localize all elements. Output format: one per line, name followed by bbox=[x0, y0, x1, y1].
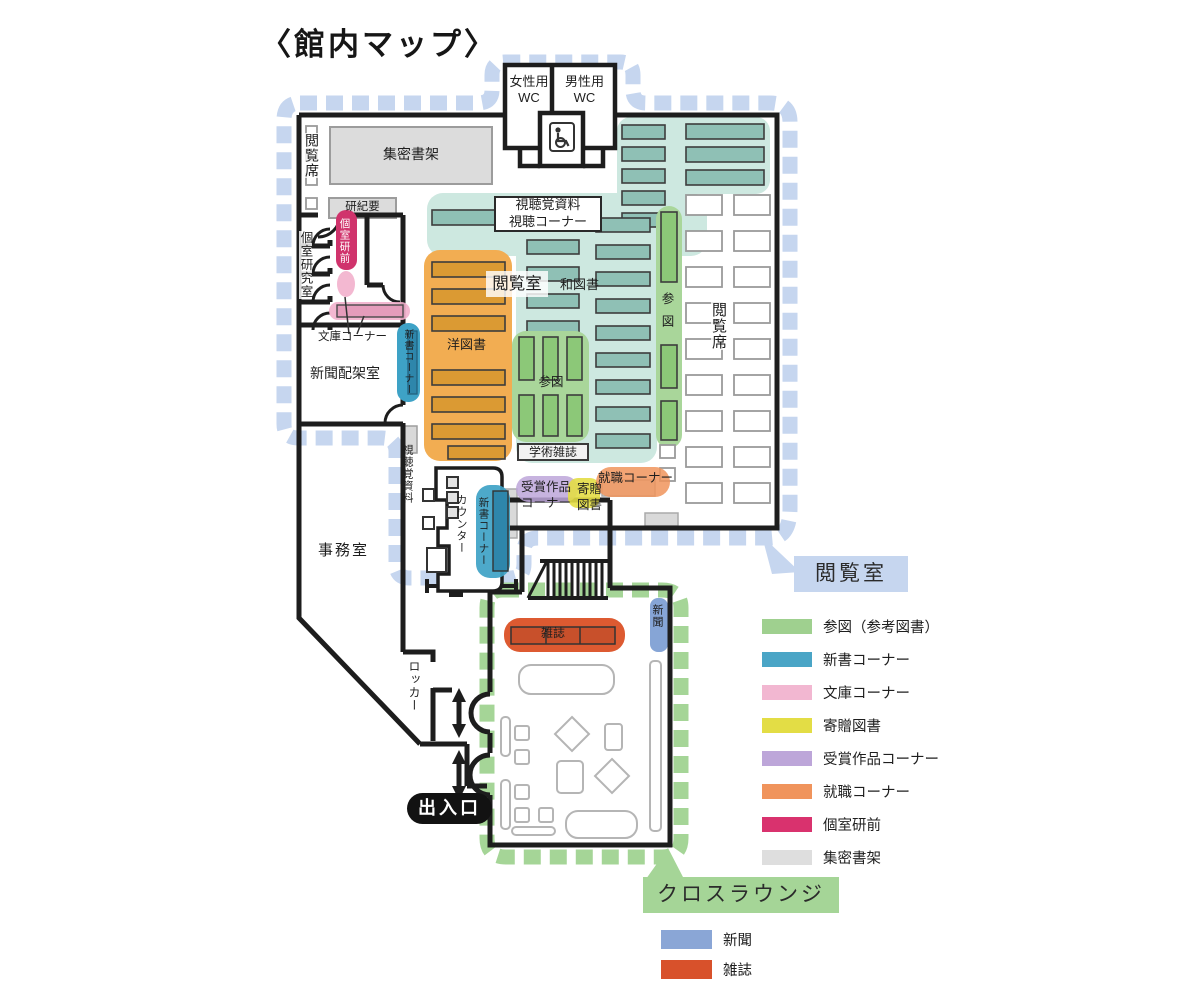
label-reading-room-inline: 閲覧室 bbox=[486, 271, 548, 297]
legend-item: 参図（参考図書） bbox=[762, 616, 939, 637]
label-donated-books: 寄贈 図書 bbox=[577, 481, 602, 514]
label-private-study-rooms: 個室研究室 bbox=[299, 231, 312, 299]
legend-item: 受賞作品コーナー bbox=[762, 748, 939, 769]
page-title: 〈館内マップ〉 bbox=[260, 26, 498, 65]
label-reference-strip: 参図 bbox=[660, 292, 673, 337]
label-locker: ロッカー bbox=[408, 660, 420, 712]
reading-room-legend: 参図（参考図書） 新書コーナー 文庫コーナー 寄贈図書 受賞作品コーナー 就職コ… bbox=[762, 616, 939, 880]
label-kenkiyo: 研紀要 bbox=[329, 200, 396, 214]
legend-item: 就職コーナー bbox=[762, 781, 939, 802]
legend-item: 文庫コーナー bbox=[762, 682, 939, 703]
legend-label: 新書コーナー bbox=[823, 649, 910, 670]
legend-swatch bbox=[762, 751, 812, 766]
legend-swatch bbox=[762, 817, 812, 832]
legend-swatch bbox=[762, 784, 812, 799]
label-bunko-corner: 文庫コーナー bbox=[318, 330, 387, 344]
legend-label: 寄贈図書 bbox=[823, 715, 881, 736]
legend-swatch bbox=[762, 718, 812, 733]
legend-item: 寄贈図書 bbox=[762, 715, 939, 736]
legend-item: 集密書架 bbox=[762, 847, 939, 868]
legend-swatch bbox=[762, 685, 812, 700]
label-newspaper-rack-room: 新聞配架室 bbox=[310, 365, 380, 383]
label-av-corner: 視聴覚資料 視聴コーナー bbox=[494, 196, 602, 232]
legend-item: 新書コーナー bbox=[762, 649, 939, 670]
label-career-corner: 就職コーナー bbox=[598, 471, 673, 487]
label-reference-center: 参図 bbox=[531, 375, 571, 391]
lounge-legend: 新聞 雑誌 bbox=[661, 929, 752, 989]
label-compact-stacks: 集密書架 bbox=[330, 146, 492, 164]
legend-label: 就職コーナー bbox=[823, 781, 910, 802]
label-entrance: 出入口 bbox=[407, 793, 492, 824]
label-reading-seats-left: 閲覧席 bbox=[305, 133, 319, 178]
label-counter: カウンター bbox=[455, 494, 466, 554]
lounge-callout-pointer bbox=[646, 848, 684, 879]
legend-swatch bbox=[762, 652, 812, 667]
legend-item: 雑誌 bbox=[661, 959, 752, 980]
label-newspaper-shelf: 新聞 bbox=[651, 604, 662, 628]
label-shinsho-corner-lower: 新書コーナー bbox=[478, 497, 489, 566]
legend-swatch bbox=[762, 619, 812, 634]
bunko-blob-small bbox=[337, 271, 355, 297]
legend-label: 集密書架 bbox=[823, 847, 881, 868]
label-reading-seats-right: 閲覧席 bbox=[711, 302, 726, 350]
label-japanese-books: 和図書 bbox=[560, 277, 599, 293]
label-private-study-front: 個室研前 bbox=[339, 218, 350, 264]
label-shinsho-corner-upper: 新書コーナー bbox=[402, 329, 412, 395]
label-wc-male: 男性用 WC bbox=[561, 74, 608, 107]
legend-swatch bbox=[661, 960, 712, 979]
legend-swatch bbox=[661, 930, 712, 949]
legend-label: 受賞作品コーナー bbox=[823, 748, 939, 769]
label-award-works-corner: 受賞作品 コーナー bbox=[521, 479, 571, 512]
legend-label: 参図（参考図書） bbox=[823, 616, 939, 637]
label-wc-female: 女性用 WC bbox=[506, 74, 552, 107]
callout-cross-lounge: クロスラウンジ bbox=[643, 877, 839, 913]
label-magazine-shelf: 雑誌 bbox=[541, 626, 565, 641]
callout-reading-room: 閲覧室 bbox=[794, 556, 908, 592]
wheelchair-icon bbox=[550, 123, 574, 151]
legend-label: 文庫コーナー bbox=[823, 682, 910, 703]
legend-label: 雑誌 bbox=[723, 959, 752, 980]
label-academic-journals: 学術雑誌 bbox=[517, 443, 589, 461]
lounge-furniture bbox=[501, 661, 661, 838]
legend-item: 個室研前 bbox=[762, 814, 939, 835]
legend-label: 新聞 bbox=[723, 929, 752, 950]
legend-item: 新聞 bbox=[661, 929, 752, 950]
small-gray-shelf bbox=[645, 513, 678, 526]
legend-label: 個室研前 bbox=[823, 814, 881, 835]
legend-swatch bbox=[762, 850, 812, 865]
label-av-materials: 視聴覚資料 bbox=[401, 444, 412, 504]
label-office: 事務室 bbox=[318, 542, 369, 561]
label-western-books: 洋図書 bbox=[447, 337, 486, 353]
library-floor-map: 〈館内マップ〉 女性用 WC 男性用 WC 集密書架 閲覧席 研紀要 個室研究室… bbox=[0, 0, 1200, 1000]
